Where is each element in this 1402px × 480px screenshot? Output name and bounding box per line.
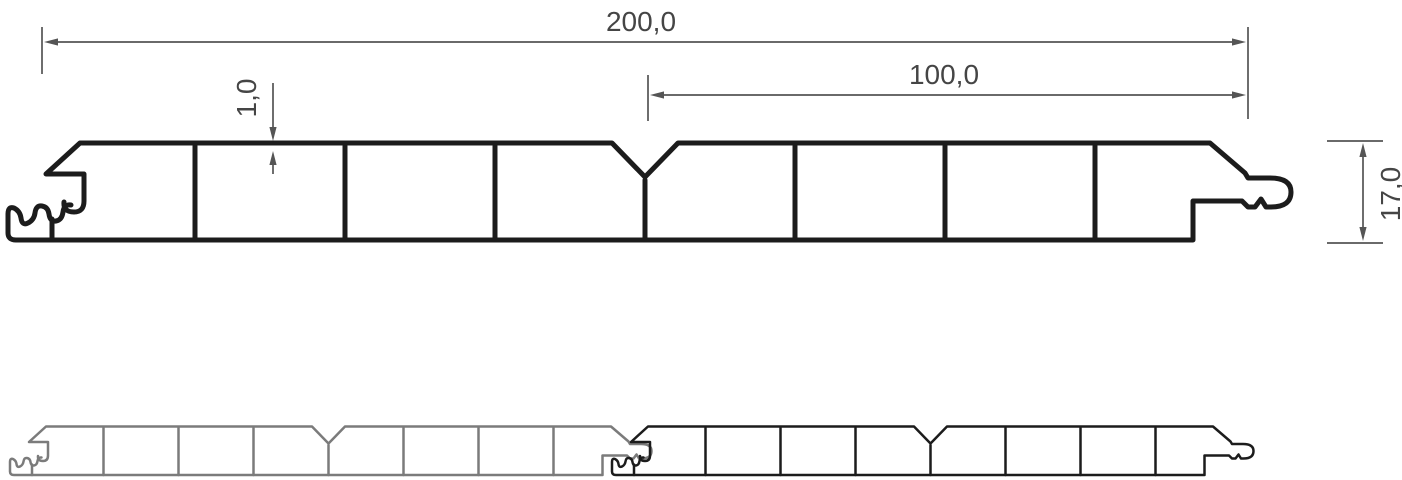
arrowhead-right (1232, 91, 1246, 98)
dimension-arrowheads (44, 38, 1367, 241)
assembled-panel-right (612, 427, 1254, 476)
main-profile-cross-section (8, 143, 1291, 240)
arrowhead-up (1359, 143, 1366, 157)
dimension-labels: 200,0 100,0 1,0 17,0 (231, 6, 1402, 221)
panel-profile-drawing: 200,0 100,0 1,0 17,0 (0, 0, 1402, 480)
assembled-panel-left (10, 427, 652, 476)
dim-wall-thickness-label: 1,0 (231, 79, 262, 118)
arrowhead-up (269, 151, 276, 165)
arrowhead-left (650, 91, 664, 98)
arrowhead-down (269, 127, 276, 141)
dimension-lines (42, 27, 1383, 243)
arrowhead-right (1232, 38, 1246, 45)
dim-half-width-label: 100,0 (909, 59, 979, 90)
arrowhead-left (44, 38, 58, 45)
dim-height-label: 17,0 (1375, 167, 1402, 222)
profile-drawing-canvas: 200,0 100,0 1,0 17,0 (0, 0, 1402, 480)
dim-total-width-label: 200,0 (606, 6, 676, 37)
arrowhead-down (1359, 227, 1366, 241)
